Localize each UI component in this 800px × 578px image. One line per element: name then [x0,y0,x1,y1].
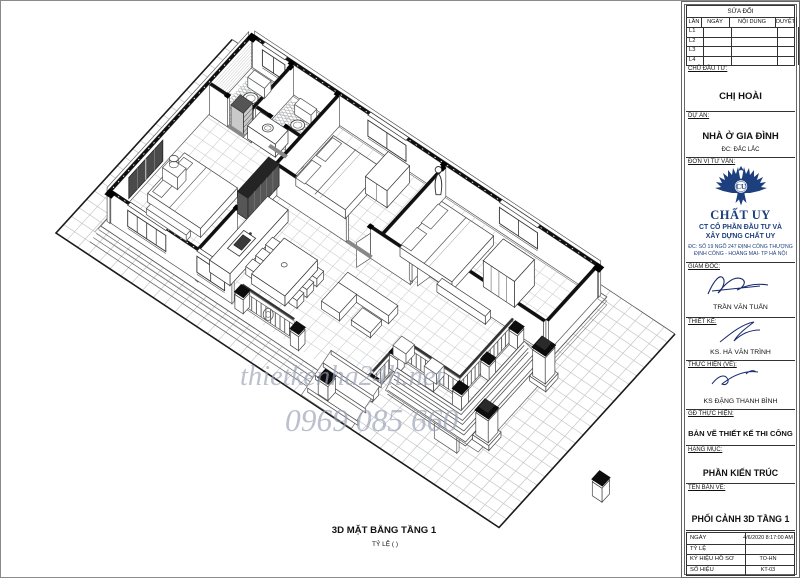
svg-text:3D MẶT BẰNG TẦNG 1: 3D MẶT BẰNG TẦNG 1 [332,525,437,536]
svg-text:CU: CU [736,183,746,191]
svg-text:0969 085 660: 0969 085 660 [285,403,459,438]
svg-text:thietkenha24h.net: thietkenha24h.net [240,361,444,392]
svg-text:TỶ LỆ ( ): TỶ LỆ ( ) [372,539,398,548]
